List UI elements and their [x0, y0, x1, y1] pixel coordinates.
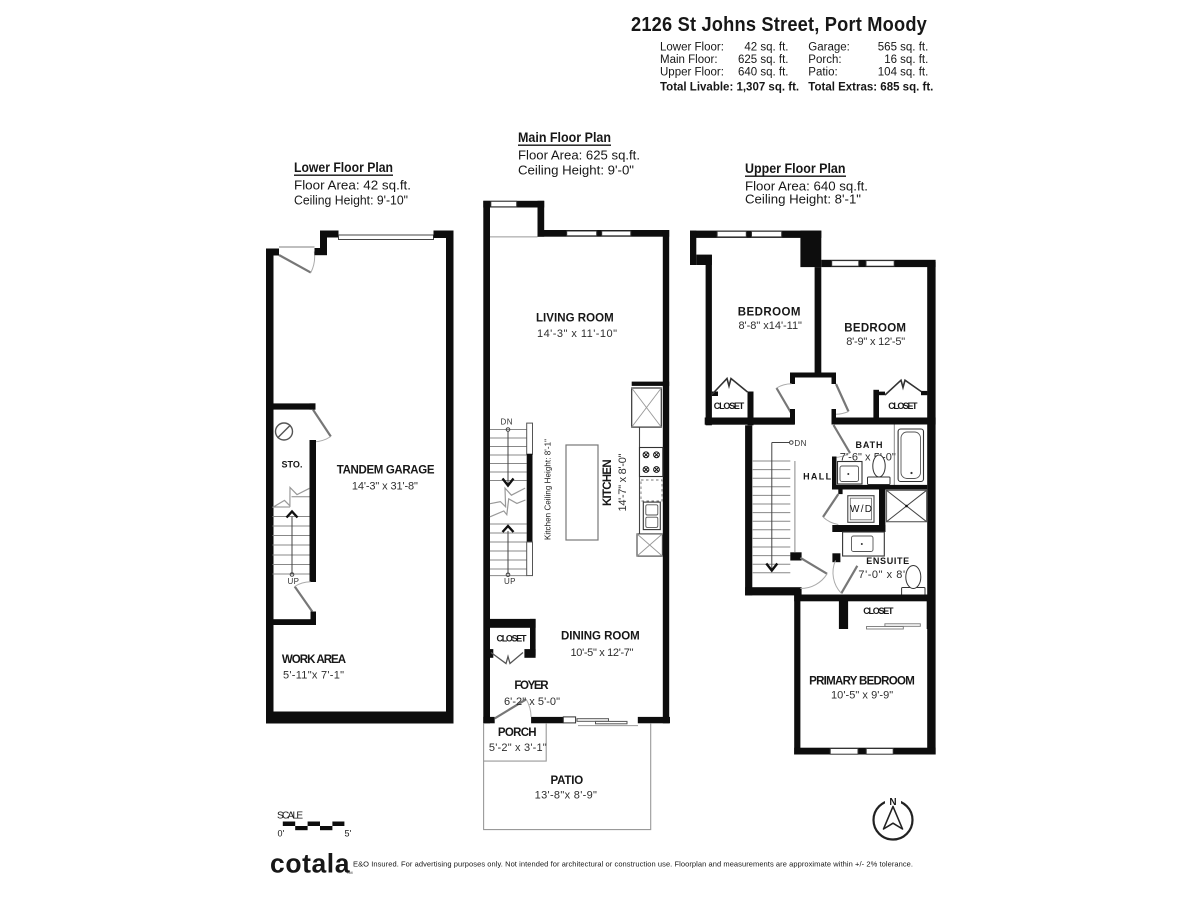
svg-text:PATIO: PATIO	[551, 775, 584, 787]
svg-text:2126 St Johns Street, Port Moo: 2126 St Johns Street, Port Moody	[631, 14, 928, 36]
svg-text:14'-3" x 31'-8": 14'-3" x 31'-8"	[352, 481, 418, 493]
svg-text:DINING ROOM: DINING ROOM	[561, 631, 640, 643]
svg-text:STO.: STO.	[282, 460, 303, 470]
svg-text:Ceiling Height: 8'-1": Ceiling Height: 8'-1"	[745, 192, 861, 207]
svg-text:Main Floor:: Main Floor:	[660, 54, 718, 66]
svg-text:E&O Insured. For advertising p: E&O Insured. For advertising purposes on…	[353, 860, 913, 869]
svg-text:TM: TM	[347, 870, 353, 875]
svg-text:Lower Floor:: Lower Floor:	[660, 42, 724, 54]
svg-text:Floor Area: 42 sq.ft.: Floor Area: 42 sq.ft.	[294, 178, 411, 193]
svg-text:13'-8"x 8'-9": 13'-8"x 8'-9"	[535, 790, 597, 802]
svg-text:CLOSET: CLOSET	[888, 401, 918, 411]
svg-text:BEDROOM: BEDROOM	[738, 307, 801, 319]
svg-text:CLOSET: CLOSET	[863, 606, 894, 616]
svg-text:TANDEM GARAGE: TANDEM GARAGE	[337, 465, 435, 477]
svg-text:BATH: BATH	[856, 440, 883, 450]
svg-text:Upper Floor Plan: Upper Floor Plan	[745, 161, 846, 176]
svg-text:CLOSET: CLOSET	[714, 401, 745, 411]
svg-text:Upper Floor:: Upper Floor:	[660, 67, 724, 79]
svg-text:14'-3" x 11'-10": 14'-3" x 11'-10"	[537, 328, 617, 340]
svg-text:565 sq. ft.: 565 sq. ft.	[878, 42, 929, 54]
svg-text:DN: DN	[501, 417, 514, 426]
svg-text:Lower Floor Plan: Lower Floor Plan	[294, 160, 393, 175]
svg-text:UP: UP	[504, 577, 516, 586]
svg-text:HALL: HALL	[803, 472, 832, 482]
svg-text:W/D: W/D	[850, 504, 872, 515]
svg-text:625 sq. ft.: 625 sq. ft.	[738, 54, 789, 66]
svg-text:KITCHEN: KITCHEN	[602, 459, 614, 506]
svg-text:Total Livable: 1,307 sq. ft.: Total Livable: 1,307 sq. ft.	[660, 82, 799, 94]
svg-text:PRIMARY BEDROOM: PRIMARY BEDROOM	[809, 676, 915, 688]
svg-text:BEDROOM: BEDROOM	[844, 323, 906, 335]
svg-text:SCALE: SCALE	[277, 811, 303, 822]
svg-text:Total Extras: 685 sq. ft.: Total Extras: 685 sq. ft.	[808, 82, 933, 94]
svg-text:10'-5" x 9'-9": 10'-5" x 9'-9"	[831, 690, 893, 702]
svg-text:Ceiling Height: 9'-10": Ceiling Height: 9'-10"	[294, 193, 408, 208]
svg-text:cotala: cotala	[270, 849, 350, 879]
svg-text:PORCH: PORCH	[498, 727, 537, 739]
svg-text:ENSUITE: ENSUITE	[866, 556, 909, 566]
svg-text:640 sq. ft.: 640 sq. ft.	[738, 67, 789, 79]
svg-text:FOYER: FOYER	[514, 680, 549, 692]
svg-text:5'-11"x 7'-1": 5'-11"x 7'-1"	[283, 670, 344, 682]
svg-text:14'-7" x 8'-0": 14'-7" x 8'-0"	[617, 453, 629, 511]
svg-text:LIVING ROOM: LIVING ROOM	[536, 313, 614, 325]
svg-text:Garage:: Garage:	[808, 42, 850, 54]
svg-text:WORK AREA: WORK AREA	[282, 654, 347, 666]
svg-text:CLOSET: CLOSET	[497, 634, 528, 644]
svg-text:5': 5'	[345, 829, 352, 839]
svg-text:42 sq. ft.: 42 sq. ft.	[744, 42, 788, 54]
svg-text:104 sq. ft.: 104 sq. ft.	[878, 67, 929, 79]
svg-text:Main Floor Plan: Main Floor Plan	[518, 130, 611, 145]
svg-text:10'-5" x 12'-7": 10'-5" x 12'-7"	[571, 647, 634, 659]
svg-text:8'-8" x14'-11": 8'-8" x14'-11"	[738, 320, 802, 332]
svg-text:Floor Area: 625 sq.ft.: Floor Area: 625 sq.ft.	[518, 148, 640, 163]
svg-text:Kitchen Ceiling Height: 8'-1": Kitchen Ceiling Height: 8'-1"	[544, 439, 553, 540]
svg-text:5'-2" x 3'-1": 5'-2" x 3'-1"	[489, 742, 547, 754]
svg-text:6'-2" x 5'-0": 6'-2" x 5'-0"	[504, 696, 560, 708]
svg-text:Patio:: Patio:	[808, 67, 837, 79]
svg-text:Porch:: Porch:	[808, 54, 841, 66]
svg-text:Ceiling Height: 9'-0": Ceiling Height: 9'-0"	[518, 163, 634, 178]
svg-text:DN: DN	[794, 439, 807, 448]
svg-text:0': 0'	[278, 829, 285, 839]
svg-text:8'-9" x 12'-5": 8'-9" x 12'-5"	[846, 336, 905, 348]
svg-text:16 sq. ft.: 16 sq. ft.	[884, 54, 928, 66]
